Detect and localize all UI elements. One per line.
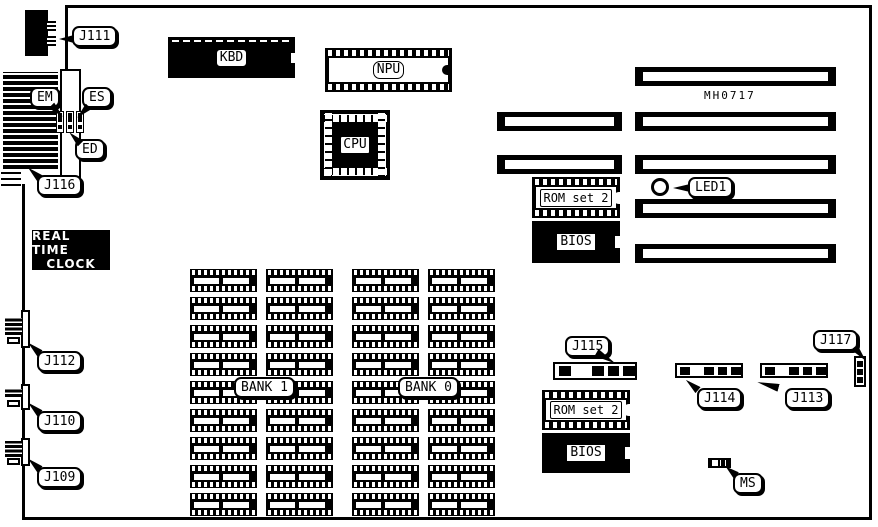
- jumper-ms: [708, 458, 731, 468]
- memory-chip: [190, 493, 257, 516]
- cpu-corner-notch: [324, 169, 331, 176]
- memory-chip: [190, 437, 257, 460]
- cpu-label: CPU: [340, 136, 369, 154]
- connector-j110-pins: [5, 389, 22, 397]
- connector-j112-key: [7, 337, 20, 344]
- rom-band: ROM set 2: [546, 400, 626, 420]
- socket-teeth: [328, 50, 449, 56]
- ms-open-pin: [712, 460, 718, 466]
- memory-chip: [428, 353, 495, 376]
- callout-em: EM: [30, 87, 60, 108]
- callout-text: EM: [37, 90, 53, 105]
- keyboard-connector-pins: [47, 36, 56, 46]
- memory-chip: [266, 325, 333, 348]
- memory-chip: [266, 465, 333, 488]
- rom-band: ROM set 2: [536, 187, 616, 208]
- callout-j117: J117: [813, 330, 858, 351]
- callout-j113: J113: [785, 388, 830, 409]
- board-edge-right: [869, 5, 872, 520]
- callout-j109: J109: [37, 467, 82, 488]
- memory-chip: [352, 437, 419, 460]
- npu-label: NPU: [373, 61, 404, 79]
- kbd-notch: [291, 53, 295, 63]
- memory-chip: [190, 465, 257, 488]
- callout-text: ED: [82, 142, 98, 157]
- callout-text: J110: [44, 414, 75, 429]
- callout-tail: [756, 378, 779, 391]
- memory-chip: [352, 465, 419, 488]
- rtc-chip: REAL TIME CLOCK: [32, 230, 110, 270]
- rom-set2-label: ROM set 2: [540, 189, 611, 207]
- memory-chip: [428, 437, 495, 460]
- npu-notch: [442, 65, 448, 75]
- kbd-chip: KBD: [168, 37, 295, 78]
- callout-j110: J110: [37, 411, 82, 432]
- memory-chip: [266, 437, 333, 460]
- expansion-slot: [635, 112, 836, 131]
- motherboard-diagram: KBD NPU CPU MH0717 ROM set 2: [0, 0, 878, 527]
- rom-set2-socket-top: ROM set 2: [532, 177, 620, 218]
- memory-chip: [352, 493, 419, 516]
- connector-j110-key: [7, 400, 20, 407]
- jumper-j115: [553, 362, 637, 380]
- npu-band: NPU: [329, 58, 448, 82]
- expansion-slot: [635, 155, 836, 174]
- connector-j109-key: [7, 458, 20, 465]
- bios-label: BIOS: [557, 234, 594, 250]
- callout-text: LED1: [695, 180, 726, 195]
- callout-j115: J115: [565, 336, 610, 357]
- callout-ed: ED: [75, 139, 105, 160]
- socket-teeth: [545, 392, 627, 398]
- callout-text: J109: [44, 470, 75, 485]
- bios-chip-bottom: BIOS: [542, 433, 630, 473]
- bios-label: BIOS: [567, 445, 604, 461]
- connector-j112-pins: [5, 318, 22, 335]
- keyboard-connector: [25, 10, 48, 56]
- connector-j110-body: [21, 384, 30, 410]
- memory-chip: [266, 297, 333, 320]
- rtc-label-line2: CLOCK: [46, 257, 95, 271]
- keyboard-connector-pins: [47, 21, 56, 31]
- memory-chip: [352, 409, 419, 432]
- socket-teeth: [535, 179, 617, 185]
- callout-j116: J116: [37, 175, 82, 196]
- board-edge-left-lower: [22, 184, 25, 520]
- rom-set2-label: ROM set 2: [550, 401, 621, 419]
- callout-j111: J111: [72, 26, 117, 47]
- memory-chip: [266, 269, 333, 292]
- callout-text: J115: [572, 339, 603, 354]
- memory-chip: [352, 325, 419, 348]
- connector-j112-body: [21, 310, 30, 348]
- callout-tail: [683, 377, 700, 393]
- memory-chip: [428, 465, 495, 488]
- memory-chip: [428, 409, 495, 432]
- memory-chip: [266, 493, 333, 516]
- board-edge-top: [65, 5, 872, 8]
- memory-chip: [266, 353, 333, 376]
- slot-opening: [643, 72, 828, 81]
- memory-chip: [266, 409, 333, 432]
- expansion-slot: [497, 112, 622, 131]
- board-code: MH0717: [704, 89, 756, 102]
- memory-chip: [352, 269, 419, 292]
- slot-opening: [643, 117, 828, 126]
- expansion-slot: [635, 67, 836, 86]
- bios-notch: [625, 447, 630, 459]
- memory-chip: [428, 297, 495, 320]
- slot-opening: [643, 160, 828, 169]
- ms-pin-gap: [725, 460, 726, 466]
- expansion-slot: [497, 155, 622, 174]
- slot-opening: [505, 117, 614, 126]
- memory-chip: [352, 353, 419, 376]
- memory-chip: [428, 269, 495, 292]
- callout-text: ES: [89, 90, 105, 105]
- callout-tail: [673, 184, 690, 192]
- ms-pin-gap: [720, 460, 721, 466]
- memory-chip: [190, 269, 257, 292]
- memory-chip: [428, 325, 495, 348]
- slot-opening: [505, 160, 614, 169]
- ribbon-tail: [1, 170, 21, 186]
- bios-notch: [615, 236, 620, 248]
- callout-text: J111: [79, 29, 110, 44]
- rom-notch: [613, 192, 620, 204]
- connector-j109-body: [21, 438, 30, 466]
- npu-socket: NPU: [325, 48, 452, 92]
- memory-chip: [190, 409, 257, 432]
- rom-notch: [623, 404, 630, 416]
- memory-chip: [190, 297, 257, 320]
- callout-text: J112: [44, 354, 75, 369]
- callout-text: MS: [740, 476, 756, 491]
- callout-text: J116: [44, 178, 75, 193]
- bank1-label-box: BANK 1: [234, 377, 295, 398]
- callout-es: ES: [82, 87, 112, 108]
- rom-set2-socket-bottom: ROM set 2: [542, 390, 630, 430]
- jumper-j113: [760, 363, 828, 378]
- led1-indicator: [651, 178, 669, 196]
- board-edge-bottom: [22, 517, 872, 520]
- socket-teeth: [545, 422, 627, 428]
- rtc-label-line1: REAL TIME: [32, 229, 110, 257]
- kbd-dashed-line: [172, 40, 291, 42]
- memory-chip: [190, 325, 257, 348]
- callout-text: J117: [820, 333, 851, 348]
- socket-teeth: [328, 84, 449, 90]
- bank1-label: BANK 1: [234, 376, 295, 398]
- cpu-die: CPU: [332, 122, 378, 168]
- connector-j109-pins: [5, 441, 22, 457]
- callout-text: J114: [704, 391, 735, 406]
- jumper-j114: [675, 363, 743, 378]
- callout-text: J113: [792, 391, 823, 406]
- bank0-label: BANK 0: [398, 376, 459, 398]
- callout-ms: MS: [733, 473, 763, 494]
- expansion-slot: [635, 244, 836, 263]
- socket-teeth: [535, 210, 617, 216]
- callout-led1: LED1: [688, 177, 733, 198]
- memory-chip: [352, 297, 419, 320]
- jumper-j117: [854, 356, 866, 387]
- jumper-ed: [66, 111, 74, 133]
- memory-chip: [190, 353, 257, 376]
- cpu-chip: CPU: [320, 110, 390, 180]
- bios-chip-top: BIOS: [532, 221, 620, 263]
- slot-opening: [643, 249, 828, 258]
- expansion-slot: [635, 199, 836, 218]
- kbd-label: KBD: [216, 49, 247, 67]
- callout-j114: J114: [697, 388, 742, 409]
- memory-chip: [428, 493, 495, 516]
- cpu-pins: [325, 113, 332, 177]
- callout-j112: J112: [37, 351, 82, 372]
- cpu-pins: [378, 113, 385, 177]
- slot-opening: [643, 204, 828, 213]
- bank0-label-box: BANK 0: [398, 377, 459, 398]
